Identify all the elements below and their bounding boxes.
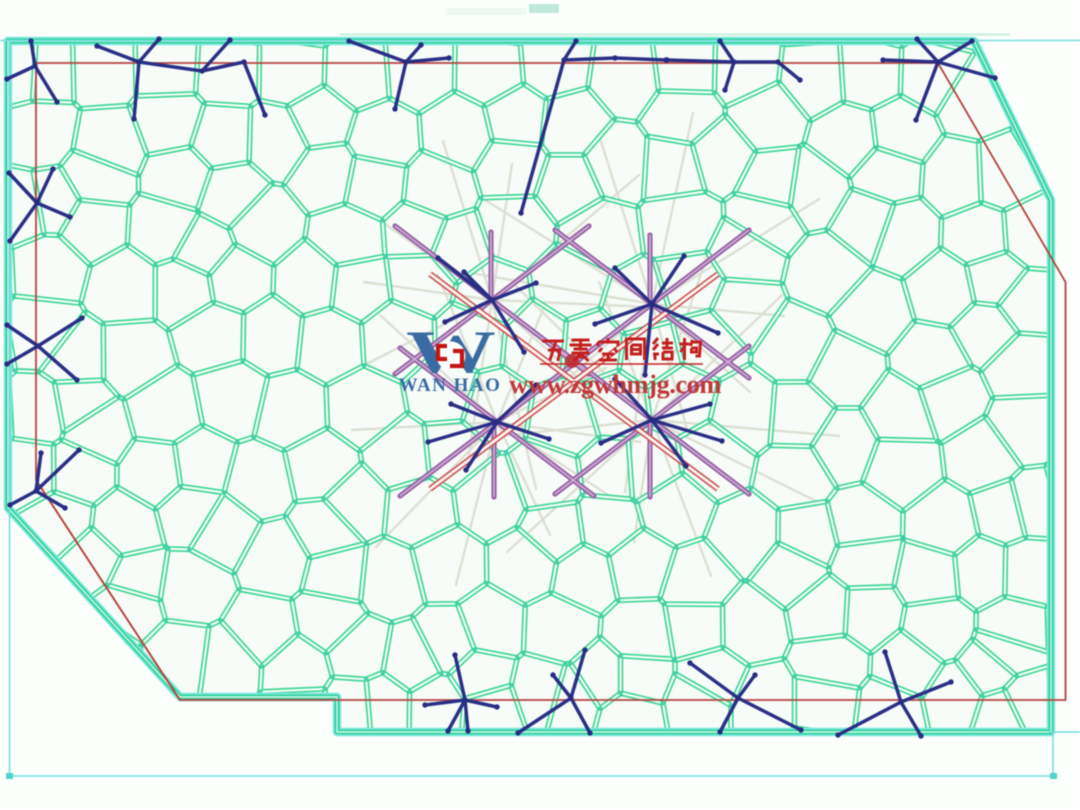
svg-text:WAN HAO: WAN HAO (399, 375, 502, 396)
svg-text:www.zgwhmjg.com: www.zgwhmjg.com (509, 369, 721, 399)
